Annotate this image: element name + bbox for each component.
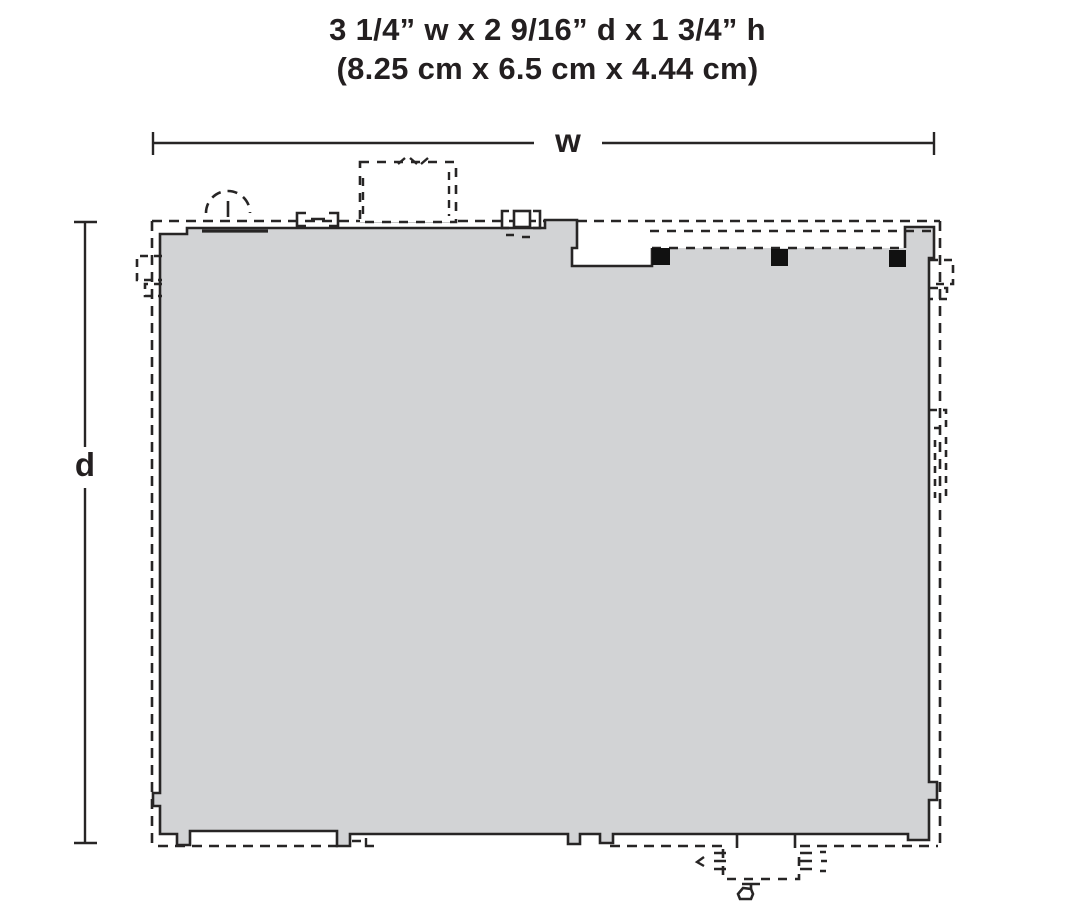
- width-dimension-line: [153, 132, 934, 155]
- dock-steps-right: [800, 853, 812, 869]
- dock-dot-marks: [820, 852, 827, 871]
- top-edge-bracket-detail-left: [297, 213, 338, 226]
- hydrant-icon: [738, 884, 760, 899]
- dock-post: [652, 248, 670, 265]
- bottom-edge-marks: [352, 838, 374, 846]
- top-dock-platform: [360, 158, 456, 222]
- building-footprint: [153, 220, 937, 848]
- door-jamb-stubs: [737, 834, 795, 848]
- dock-post: [889, 250, 906, 267]
- dock-post: [771, 249, 788, 266]
- bottom-dock-platform: [697, 849, 827, 899]
- building-footprint-diagram: [0, 0, 1073, 907]
- depth-dimension-line: [74, 222, 97, 843]
- footprint-diagram-page: 3 1/4” w x 2 9/16” d x 1 3/4” h (8.25 cm…: [0, 0, 1073, 907]
- right-wall-downspout-detail: [930, 410, 946, 498]
- dock-arrow-mark: [697, 857, 704, 866]
- right-wall-chimney-detail: [930, 260, 953, 299]
- left-wall-chimney-detail: [137, 256, 162, 296]
- roof-vent-arc: [206, 191, 250, 217]
